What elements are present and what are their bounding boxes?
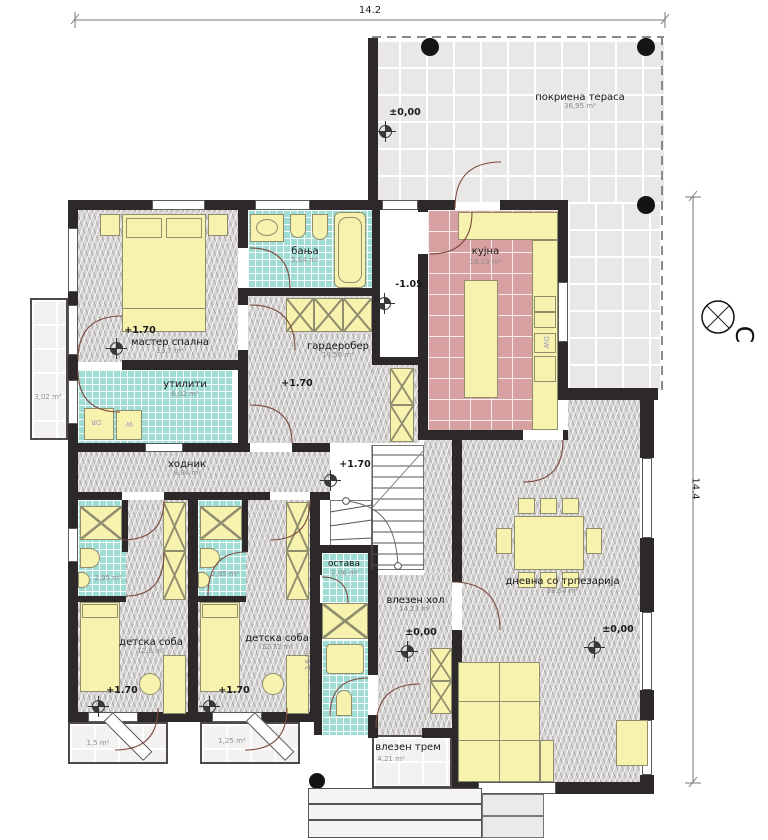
- washer-label: W: [126, 420, 133, 428]
- wall: [372, 200, 380, 357]
- wall: [563, 430, 568, 440]
- floor-master-balcony: [30, 298, 68, 440]
- chair: [586, 528, 602, 554]
- room-area-balcony1: 1,5 m²: [78, 740, 118, 748]
- roof-edge-top: [372, 36, 664, 38]
- entrance-steps: [308, 820, 482, 838]
- level-wardrobe: +1.70: [272, 378, 322, 389]
- window: [145, 443, 183, 452]
- wall: [248, 288, 372, 296]
- room-area-entry-hall: 14,23 m²: [382, 606, 448, 614]
- balcony-door: [68, 305, 78, 355]
- pillow: [126, 218, 162, 238]
- floor-living-upper: [568, 400, 640, 440]
- wall: [68, 562, 78, 722]
- window: [255, 200, 310, 210]
- roof-edge-right: [661, 36, 663, 390]
- room-area-kids2: 12,71 m²: [242, 644, 312, 652]
- floor-terrace-right: [568, 202, 660, 390]
- wall: [418, 430, 523, 440]
- chair: [262, 673, 284, 695]
- floor-stairs-run: [372, 445, 424, 570]
- chair: [496, 528, 512, 554]
- side-step: [482, 794, 544, 816]
- column: [421, 38, 439, 56]
- shower-cabin: [200, 506, 242, 540]
- level-marker: [379, 125, 392, 138]
- north-compass: [702, 301, 734, 333]
- level-marker: [378, 297, 391, 310]
- room-name-kitchen: кујна: [458, 246, 513, 257]
- chair: [540, 498, 557, 514]
- wall: [314, 603, 322, 735]
- bed-sheet-line: [122, 308, 206, 309]
- window: [558, 282, 568, 342]
- wall: [68, 200, 78, 228]
- sink-bowl: [256, 219, 278, 236]
- sofa-chaise: [540, 740, 554, 782]
- kitchen-cabinet: [534, 356, 556, 382]
- closet: [390, 405, 414, 442]
- level-kids1: +1.70: [100, 685, 144, 696]
- level-landing: -1.05: [386, 279, 432, 290]
- wall: [68, 292, 78, 305]
- floor-plan: DR W DW: [0, 0, 768, 840]
- closet: [163, 551, 186, 600]
- wall: [122, 500, 128, 552]
- room-name-living: дневна со трпезарија: [500, 576, 625, 587]
- closet: [163, 502, 186, 551]
- window: [68, 380, 78, 424]
- room-name-utility: утилити: [155, 379, 215, 390]
- level-marker: [401, 645, 414, 658]
- shower-tray: [326, 644, 364, 674]
- wall: [122, 360, 238, 370]
- room-name-porch: влезен трем: [372, 742, 444, 753]
- sofa-seam: [458, 701, 540, 702]
- window: [152, 200, 205, 210]
- floor-entry-hall-upper: [424, 440, 452, 575]
- wall: [418, 200, 428, 212]
- level-marker: [92, 700, 105, 713]
- wall: [188, 492, 198, 712]
- floor-stairs-winder: [330, 500, 372, 550]
- window: [642, 612, 652, 690]
- wall-living-top: [558, 388, 658, 400]
- wall: [68, 492, 122, 500]
- wall-terrace-left: [368, 38, 378, 202]
- shower-cabin: [80, 506, 122, 540]
- toilet: [200, 548, 220, 568]
- bidet: [312, 214, 328, 240]
- wall: [368, 545, 378, 675]
- wall: [242, 500, 248, 552]
- level-living: ±0,00: [595, 624, 641, 635]
- sofa-seam: [458, 740, 554, 741]
- room-area-terrace: 36,95 m²: [500, 103, 660, 111]
- north-letter: С: [730, 326, 759, 343]
- wall: [68, 712, 88, 722]
- kitchen-sink: [534, 312, 556, 328]
- wall: [314, 545, 376, 553]
- window: [68, 228, 78, 292]
- washer: W: [116, 410, 142, 440]
- dryer: DR: [84, 408, 114, 440]
- closet: [322, 603, 368, 639]
- room-area-master: 13,7 m²: [128, 348, 212, 356]
- level-marker: [110, 342, 123, 355]
- level-marker: [324, 474, 337, 487]
- room-area-wc: 2,6 m²: [305, 644, 313, 674]
- pillow: [202, 604, 238, 618]
- level-marker: [588, 641, 601, 654]
- dining-table: [514, 516, 584, 570]
- nightstand: [100, 214, 120, 236]
- room-area-porch: 4,21 m²: [360, 756, 422, 764]
- kitchen-counter-top: [458, 212, 558, 240]
- wall: [558, 200, 568, 282]
- wall: [556, 782, 654, 794]
- wall: [68, 424, 78, 528]
- entrance-steps: [308, 804, 482, 820]
- wall: [68, 443, 145, 452]
- terrace-door: [382, 200, 418, 210]
- room-area-kitchen: 18,19 m²: [458, 259, 513, 267]
- toilet: [290, 214, 306, 238]
- closet: [286, 551, 309, 600]
- wall: [292, 443, 330, 452]
- pillow: [166, 218, 202, 238]
- room-area-storage: 2,06 m²: [322, 570, 368, 578]
- closet: [343, 298, 372, 332]
- chair: [562, 498, 579, 514]
- window: [642, 458, 652, 538]
- wall: [368, 728, 378, 738]
- room-area-hallway: 8,84 m²: [160, 470, 215, 478]
- window: [68, 528, 78, 562]
- room-area-bath: 5,64 m²: [280, 257, 330, 265]
- floor-terrace-top: [372, 40, 664, 202]
- level-master: +1.70: [115, 325, 165, 336]
- dishwasher-label: DW: [542, 336, 550, 348]
- wall: [238, 350, 248, 443]
- closet: [286, 298, 314, 332]
- compass-circle-icon: [702, 301, 734, 333]
- column: [637, 196, 655, 214]
- kitchen-sink: [534, 296, 556, 312]
- room-area-kids1-bath: 2,95 m²: [88, 575, 128, 583]
- wall: [238, 288, 248, 305]
- wall: [452, 440, 462, 582]
- dimension-height-label: 14.4: [690, 474, 701, 504]
- sofa-seam: [499, 662, 500, 782]
- nightstand: [208, 214, 228, 236]
- room-area-kids1: 12,8 m²: [116, 648, 186, 656]
- armchair: [616, 720, 648, 766]
- room-area-balcony2: 1,25 m²: [210, 738, 254, 746]
- level-marker: [203, 700, 216, 713]
- closet: [286, 502, 309, 551]
- wall: [640, 690, 654, 720]
- level-kids2: +1.70: [212, 685, 256, 696]
- wall: [164, 492, 270, 500]
- room-area-master-balcony: 3,02 m²: [28, 394, 68, 402]
- closet: [314, 298, 343, 332]
- window: [478, 782, 556, 794]
- toilet: [336, 690, 352, 716]
- kitchen-island: [464, 280, 498, 398]
- closet: [430, 648, 452, 681]
- wall: [640, 538, 654, 612]
- chair: [518, 498, 535, 514]
- closet: [430, 681, 452, 714]
- wall: [68, 200, 152, 210]
- entrance-steps: [308, 788, 482, 804]
- dishwasher: DW: [534, 333, 556, 353]
- room-area-wardrobe: 14,56 m²: [305, 352, 371, 360]
- wall: [238, 200, 248, 248]
- dimension-width-label: 14.2: [345, 5, 395, 16]
- room-area-living: 38,54 m²: [530, 588, 595, 596]
- column: [309, 773, 325, 789]
- level-hallway: +1.70: [332, 459, 378, 470]
- dryer-label: DR: [91, 418, 101, 426]
- room-area-utility: 6,02 m²: [155, 391, 215, 399]
- wall: [640, 400, 654, 458]
- room-area-kids2-bath: 2,85 m²: [205, 571, 245, 579]
- pillow: [82, 604, 118, 618]
- bathtub-inner: [338, 217, 362, 283]
- level-entry-hall: ±0,00: [398, 627, 444, 638]
- wall: [183, 443, 250, 452]
- level-terrace: ±0,00: [381, 107, 429, 118]
- side-step: [482, 816, 544, 838]
- column: [637, 38, 655, 56]
- closet: [390, 368, 414, 405]
- toilet: [80, 548, 100, 568]
- wall: [68, 360, 78, 370]
- desk: [163, 655, 186, 714]
